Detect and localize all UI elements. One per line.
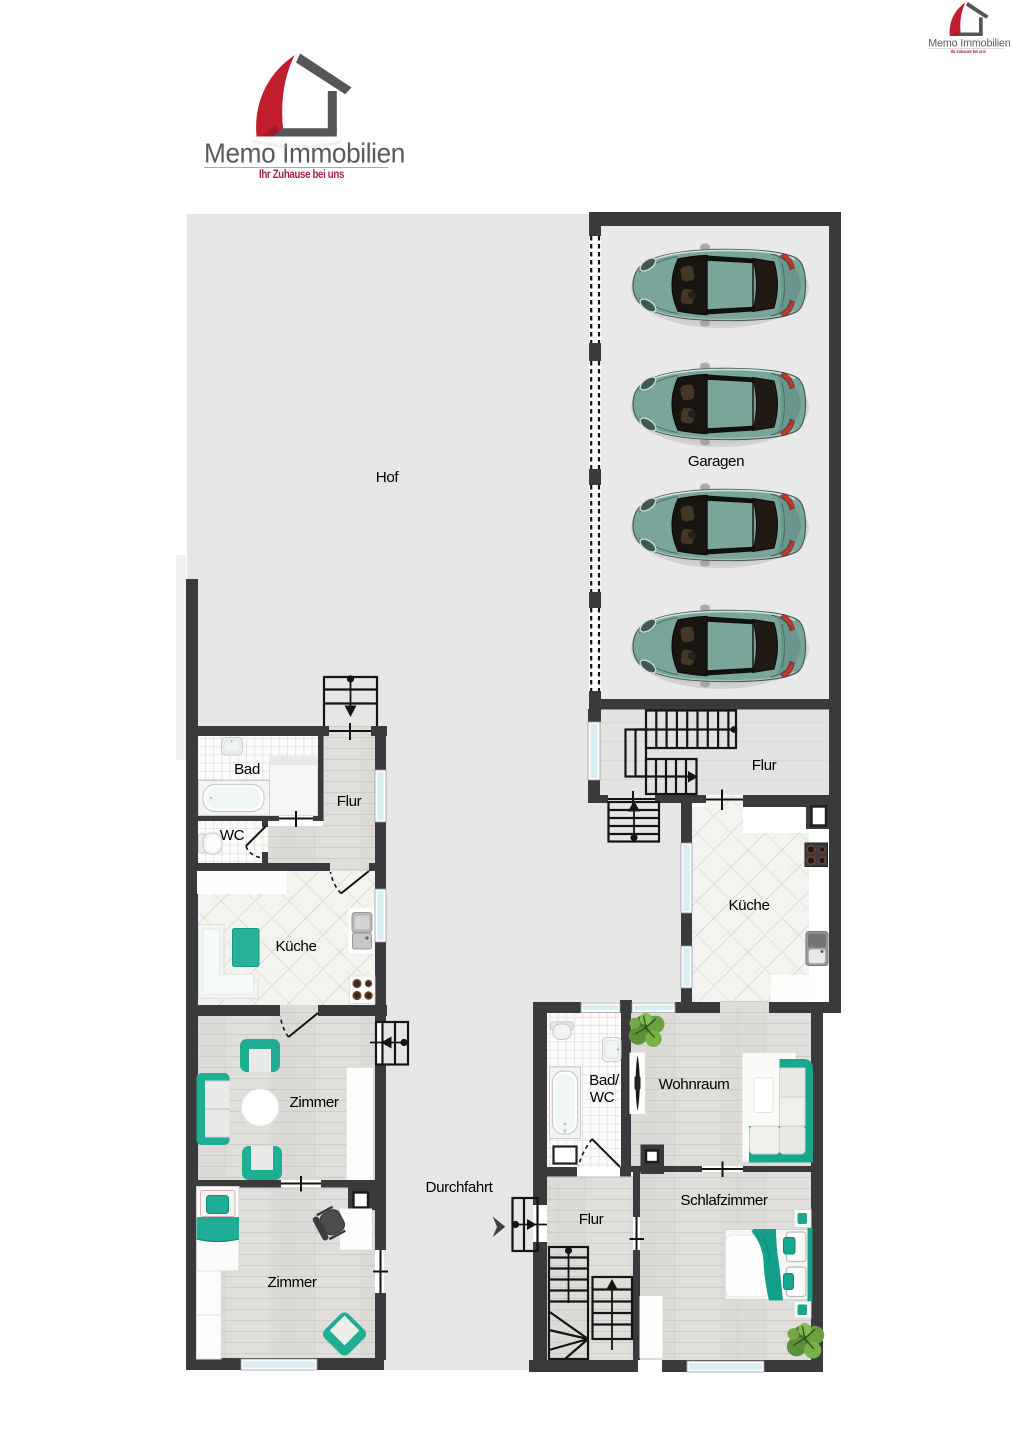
svg-text:Wohnraum: Wohnraum bbox=[659, 1076, 730, 1093]
svg-text:WC: WC bbox=[220, 827, 245, 844]
svg-text:Hof: Hof bbox=[376, 469, 400, 486]
svg-text:Flur: Flur bbox=[337, 793, 362, 810]
svg-text:Flur: Flur bbox=[579, 1211, 604, 1228]
svg-text:Durchfahrt: Durchfahrt bbox=[426, 1179, 494, 1196]
svg-text:Schlafzimmer: Schlafzimmer bbox=[680, 1192, 768, 1209]
svg-text:Flur: Flur bbox=[752, 757, 777, 774]
svg-text:Küche: Küche bbox=[275, 938, 316, 955]
svg-text:Bad/: Bad/ bbox=[589, 1072, 620, 1089]
svg-text:Garagen: Garagen bbox=[688, 453, 744, 470]
svg-text:Zimmer: Zimmer bbox=[267, 1274, 316, 1291]
svg-text:WC: WC bbox=[590, 1089, 615, 1106]
svg-text:Zimmer: Zimmer bbox=[289, 1094, 338, 1111]
svg-text:Bad: Bad bbox=[234, 761, 260, 778]
svg-text:Küche: Küche bbox=[728, 897, 769, 914]
